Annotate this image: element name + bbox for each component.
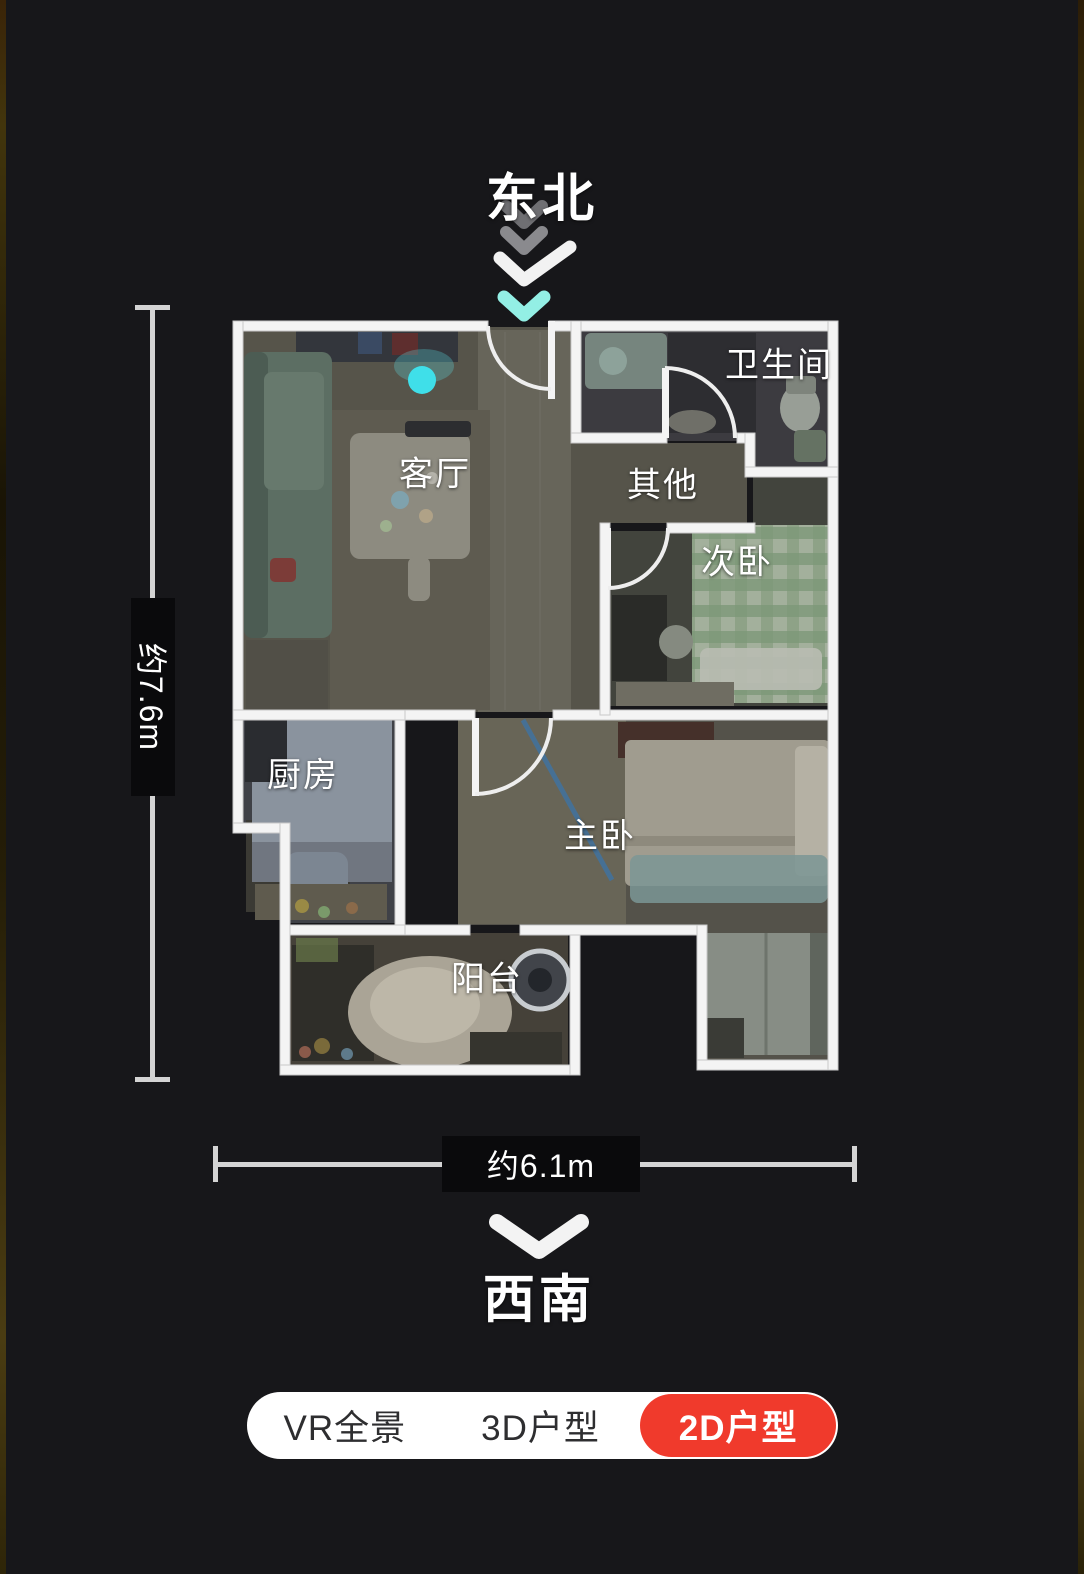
view-mode-toggle: VR全景 3D户型 2D户型 <box>247 1392 838 1459</box>
wall-top-left <box>233 321 488 331</box>
wall-extension-left <box>697 925 707 1070</box>
room-label-master-bedroom: 主卧 <box>564 809 636 858</box>
toggle-3d-layout[interactable]: 3D户型 <box>443 1392 639 1459</box>
wall-mid-a <box>233 710 405 720</box>
room-label-second-bedroom: 次卧 <box>701 535 773 584</box>
south-chevron-icon <box>497 1222 581 1251</box>
vertical-dim-cap-top <box>135 305 170 310</box>
room-label-other: 其他 <box>627 458 699 507</box>
wall-lower-left <box>280 823 290 1075</box>
toggle-vr-panorama[interactable]: VR全景 <box>247 1392 443 1459</box>
room-label-living: 客厅 <box>399 447 471 496</box>
wall-mid-c <box>553 710 838 720</box>
wall-balcony-bottom <box>280 1065 578 1075</box>
wall-top-right <box>549 321 838 331</box>
wall-kitchen-bottom <box>290 925 405 935</box>
room-label-kitchen: 厨房 <box>267 748 339 797</box>
wall-mid-b <box>405 710 475 720</box>
wall-balcony-right <box>570 925 580 1075</box>
wall-bathroom-bottom <box>571 433 667 443</box>
room-label-bathroom: 卫生间 <box>725 338 833 387</box>
horizontal-dim-cap-right <box>852 1146 857 1182</box>
wall-kitchen-right <box>395 710 405 933</box>
wall-bathroom-bedroom <box>745 467 838 477</box>
balcony-clutter <box>292 938 569 1068</box>
wall-balcony-top-a <box>405 925 470 935</box>
horizontal-dimension-label: 约6.1m <box>442 1136 640 1192</box>
compass-south-label: 西南 <box>483 1258 595 1333</box>
wall-left <box>233 321 243 833</box>
view-direction-arrow-icon <box>500 247 570 280</box>
wall-bathroom-left <box>571 321 581 443</box>
wall-extension-bottom <box>697 1060 838 1070</box>
entry-chevron-icon[interactable] <box>504 297 544 315</box>
vertical-dim-cap-bottom <box>135 1077 170 1082</box>
wall-second-bedroom-top <box>667 523 755 533</box>
living-room-floor-light <box>478 330 571 712</box>
chevron-down-icon <box>506 232 542 249</box>
wall-balcony-top-b <box>520 925 707 935</box>
vertical-dimension-label: 约7.6m <box>131 598 175 796</box>
room-label-balcony: 阳台 <box>451 952 523 1001</box>
horizontal-dim-cap-left <box>213 1146 218 1182</box>
camera-dot-icon[interactable] <box>408 366 436 394</box>
compass-north-label: 东北 <box>486 157 598 232</box>
wall-right-outer <box>828 321 838 1070</box>
floorplan-screen: 东北 西南 客厅 卫生间 其他 次卧 厨房 主卧 阳台 约7.6m 约6.1m … <box>0 0 1084 1574</box>
toggle-2d-layout[interactable]: 2D户型 <box>640 1394 836 1457</box>
